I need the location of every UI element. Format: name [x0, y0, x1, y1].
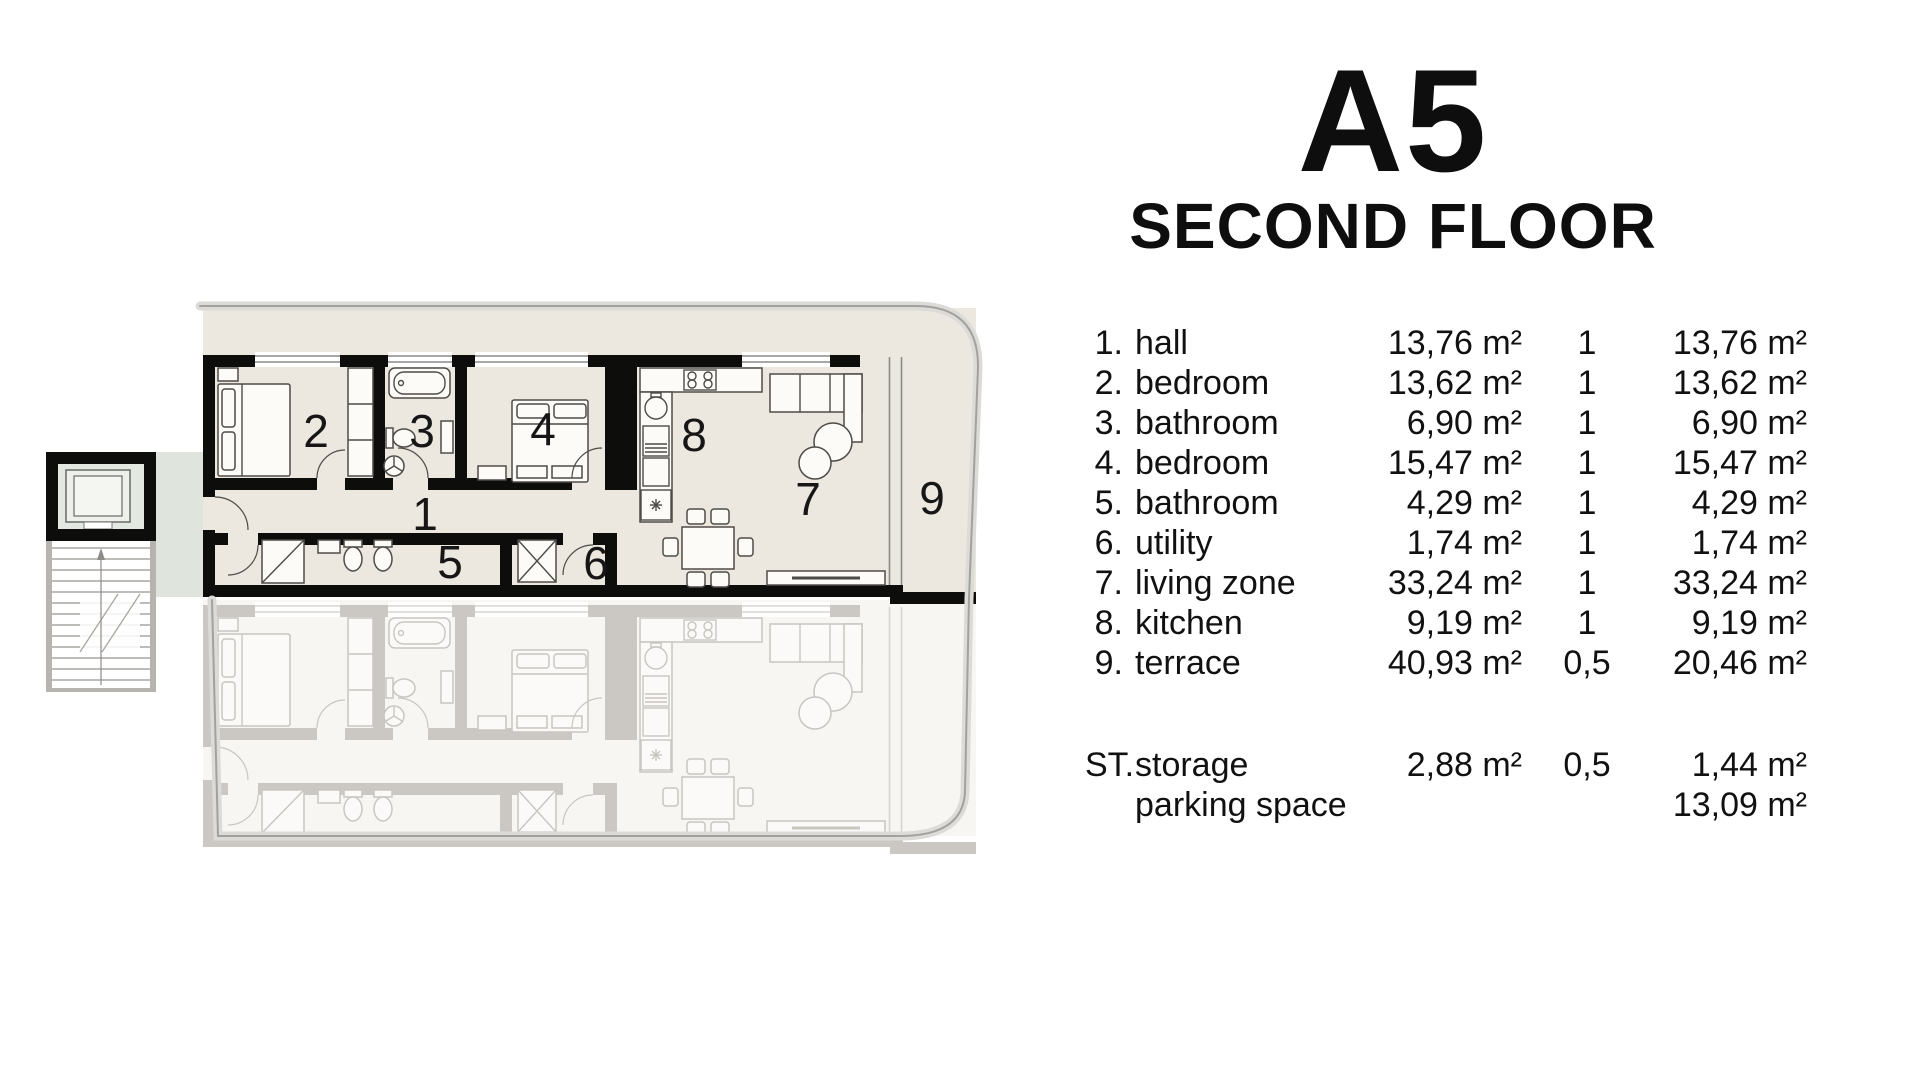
- legend-row: 6. utility 1,74 m² 1 1,74 m²: [1085, 523, 1825, 563]
- room-name: kitchen: [1123, 603, 1318, 643]
- floor-plan: 1 2 3 4 5 6 7 8 9: [40, 230, 990, 875]
- area-total: 20,46 m²: [1652, 643, 1807, 683]
- room-label-3: 3: [409, 405, 435, 457]
- room-label-6: 6: [583, 537, 609, 589]
- room-name: bathroom: [1123, 483, 1318, 523]
- legend-row: 9. terrace 40,93 m² 0,5 20,46 m²: [1085, 643, 1825, 683]
- room-label-4: 4: [530, 403, 556, 455]
- title-block: A5 SECOND FLOOR: [1060, 52, 1726, 260]
- legend-row: 1. hall 13,76 m² 1 13,76 m²: [1085, 323, 1825, 363]
- room-area: 1,74 m²: [1318, 523, 1522, 563]
- area-total: 4,29 m²: [1652, 483, 1807, 523]
- room-name: utility: [1123, 523, 1318, 563]
- area-total: 1,44 m²: [1652, 745, 1807, 785]
- room-area: 4,29 m²: [1318, 483, 1522, 523]
- room-number: 2.: [1085, 363, 1123, 403]
- floor-plan-area: 1 2 3 4 5 6 7 8 9: [40, 230, 990, 875]
- room-label-7: 7: [795, 473, 821, 525]
- floor-subtitle: SECOND FLOOR: [1060, 193, 1726, 260]
- room-name: parking space: [1123, 785, 1318, 825]
- area-total: 1,74 m²: [1652, 523, 1807, 563]
- elevator: [66, 470, 130, 529]
- legend-row-storage: ST. storage 2,88 m² 0,5 1,44 m²: [1085, 745, 1825, 785]
- area-factor: 0,5: [1522, 745, 1652, 785]
- area-factor: 1: [1522, 483, 1652, 523]
- room-number: 1.: [1085, 323, 1123, 363]
- area-total: 15,47 m²: [1652, 443, 1807, 483]
- room-label-5: 5: [437, 536, 463, 588]
- room-area: [1318, 785, 1522, 825]
- room-number: ST.: [1085, 745, 1123, 785]
- room-name: living zone: [1123, 563, 1318, 603]
- room-area: 6,90 m²: [1318, 403, 1522, 443]
- area-factor: 1: [1522, 523, 1652, 563]
- room-area: 40,93 m²: [1318, 643, 1522, 683]
- room-label-2: 2: [303, 405, 329, 457]
- room-number: [1085, 785, 1123, 825]
- room-number: 4.: [1085, 443, 1123, 483]
- area-factor: 1: [1522, 403, 1652, 443]
- legend-row: 5. bathroom 4,29 m² 1 4,29 m²: [1085, 483, 1825, 523]
- area-factor: 1: [1522, 603, 1652, 643]
- area-total: 9,19 m²: [1652, 603, 1807, 643]
- room-name: storage: [1123, 745, 1318, 785]
- area-factor: 0,5: [1522, 643, 1652, 683]
- legend-row: 4. bedroom 15,47 m² 1 15,47 m²: [1085, 443, 1825, 483]
- legend-row: 3. bathroom 6,90 m² 1 6,90 m²: [1085, 403, 1825, 443]
- area-total: 13,09 m²: [1652, 785, 1807, 825]
- room-area: 15,47 m²: [1318, 443, 1522, 483]
- room-name: hall: [1123, 323, 1318, 363]
- room-name: terrace: [1123, 643, 1318, 683]
- legend-row-parking: parking space 13,09 m²: [1085, 785, 1825, 825]
- room-number: 3.: [1085, 403, 1123, 443]
- room-legend: 1. hall 13,76 m² 1 13,76 m² 2. bedroom 1…: [1085, 323, 1825, 825]
- room-area: 2,88 m²: [1318, 745, 1522, 785]
- unit-title: A5: [1060, 52, 1726, 191]
- room-number: 6.: [1085, 523, 1123, 563]
- room-number: 8.: [1085, 603, 1123, 643]
- room-name: bedroom: [1123, 443, 1318, 483]
- room-area: 13,62 m²: [1318, 363, 1522, 403]
- room-area: 9,19 m²: [1318, 603, 1522, 643]
- room-number: 5.: [1085, 483, 1123, 523]
- room-area: 33,24 m²: [1318, 563, 1522, 603]
- legend-row: 8. kitchen 9,19 m² 1 9,19 m²: [1085, 603, 1825, 643]
- area-factor: 1: [1522, 363, 1652, 403]
- room-name: bedroom: [1123, 363, 1318, 403]
- legend-row: 2. bedroom 13,62 m² 1 13,62 m²: [1085, 363, 1825, 403]
- area-total: 13,76 m²: [1652, 323, 1807, 363]
- legend-row: 7. living zone 33,24 m² 1 33,24 m²: [1085, 563, 1825, 603]
- room-label-9: 9: [919, 472, 945, 524]
- page: 1 2 3 4 5 6 7 8 9 A5 SECOND FLOOR 1. h: [0, 0, 1920, 1080]
- stairs: [46, 541, 156, 692]
- room-area: 13,76 m²: [1318, 323, 1522, 363]
- room-number: 9.: [1085, 643, 1123, 683]
- room-number: 7.: [1085, 563, 1123, 603]
- area-total: 33,24 m²: [1652, 563, 1807, 603]
- area-factor: 1: [1522, 563, 1652, 603]
- area-factor: 1: [1522, 443, 1652, 483]
- room-name: bathroom: [1123, 403, 1318, 443]
- room-label-8: 8: [681, 409, 707, 461]
- area-factor: 1: [1522, 323, 1652, 363]
- area-total: 6,90 m²: [1652, 403, 1807, 443]
- area-total: 13,62 m²: [1652, 363, 1807, 403]
- area-factor: [1522, 785, 1652, 825]
- room-label-1: 1: [412, 488, 438, 540]
- landing: [156, 452, 203, 597]
